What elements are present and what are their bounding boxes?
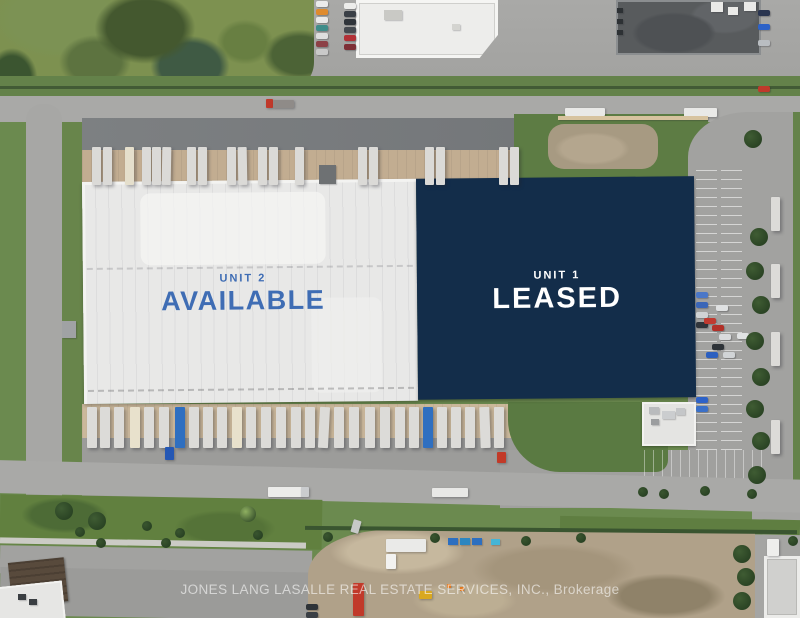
- brokerage-credit: JONES LANG LASALLE REAL ESTATE SERVICES,…: [120, 582, 680, 597]
- grass-east-edge: [793, 112, 800, 512]
- dock-strip-south: [82, 404, 516, 442]
- dirt-patch-northeast: [548, 124, 658, 169]
- aerial-property-photo: UNIT 2 AVAILABLE UNIT 1 LEASED JONES LAN…: [0, 0, 800, 618]
- roof-seam: [87, 265, 413, 270]
- unit1-status: LEASED: [437, 283, 677, 314]
- unit1-kicker: UNIT 1: [437, 268, 677, 282]
- roof-patch: [140, 192, 326, 266]
- dirt-construction-lot: [308, 530, 755, 618]
- neighbor-building-bottom-right: [764, 556, 800, 618]
- grass-west-strip: [62, 122, 84, 468]
- neighbor-building-dark: [616, 0, 761, 55]
- neighbor-building-white: [356, 0, 498, 58]
- office-building: [642, 402, 696, 446]
- warehouse-building: UNIT 2 AVAILABLE UNIT 1 LEASED: [82, 176, 696, 404]
- neighbor-building-bottom-left-white: [0, 580, 66, 618]
- bush: [323, 532, 333, 542]
- unit1-label: UNIT 1 LEASED: [437, 268, 677, 314]
- hedge-line-north: [0, 86, 800, 89]
- unit2-kicker: UNIT 2: [123, 271, 363, 285]
- unit2-status: AVAILABLE: [123, 286, 363, 315]
- unit2-label: UNIT 2 AVAILABLE: [123, 271, 363, 315]
- road-loop-west: [26, 104, 62, 496]
